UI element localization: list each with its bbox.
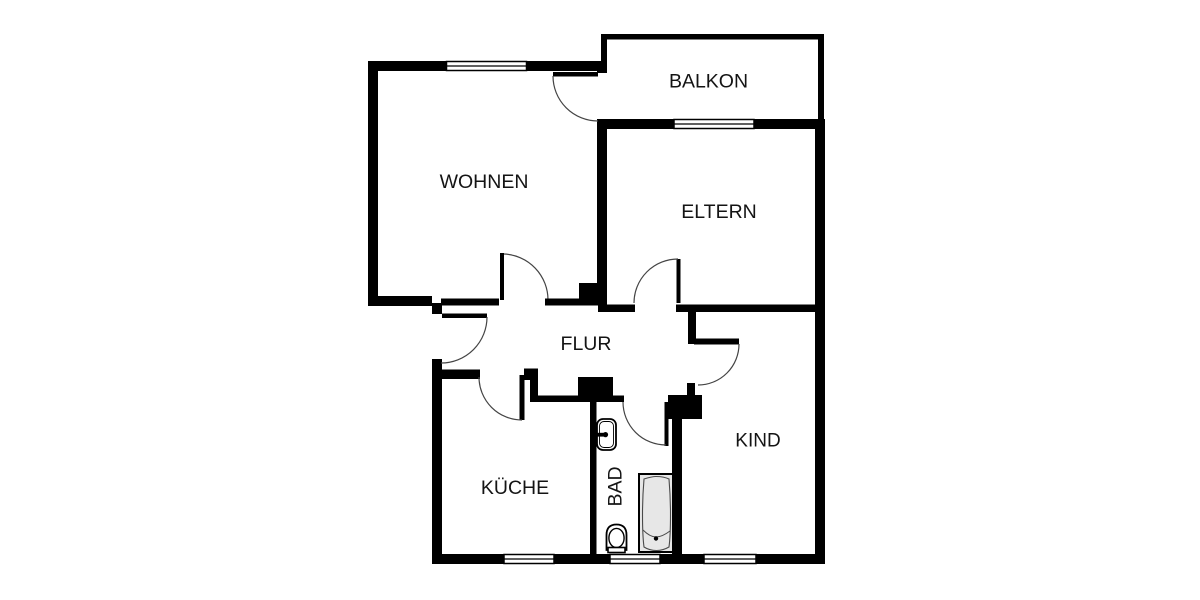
svg-text:KIND: KIND bbox=[735, 431, 780, 452]
svg-text:BAD: BAD bbox=[605, 466, 627, 506]
svg-text:FLUR: FLUR bbox=[561, 333, 612, 355]
svg-text:WOHNEN: WOHNEN bbox=[440, 171, 529, 193]
svg-text:BALKON: BALKON bbox=[669, 71, 748, 93]
svg-text:KÜCHE: KÜCHE bbox=[481, 477, 549, 499]
svg-text:ELTERN: ELTERN bbox=[681, 201, 757, 223]
